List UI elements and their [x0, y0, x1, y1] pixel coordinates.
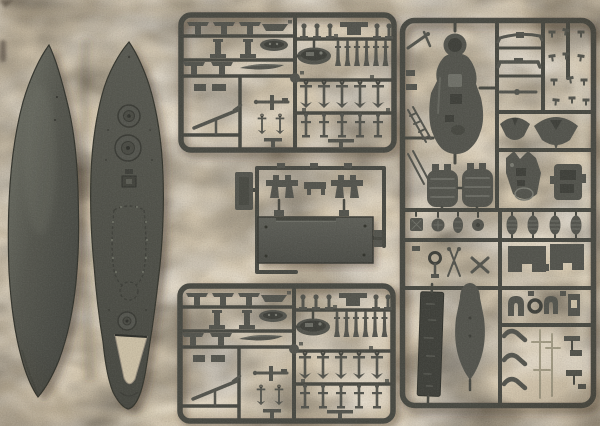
photo-canvas	[0, 0, 600, 426]
photo-model-kit-sprues	[0, 0, 600, 426]
film-grain-light	[0, 0, 600, 426]
